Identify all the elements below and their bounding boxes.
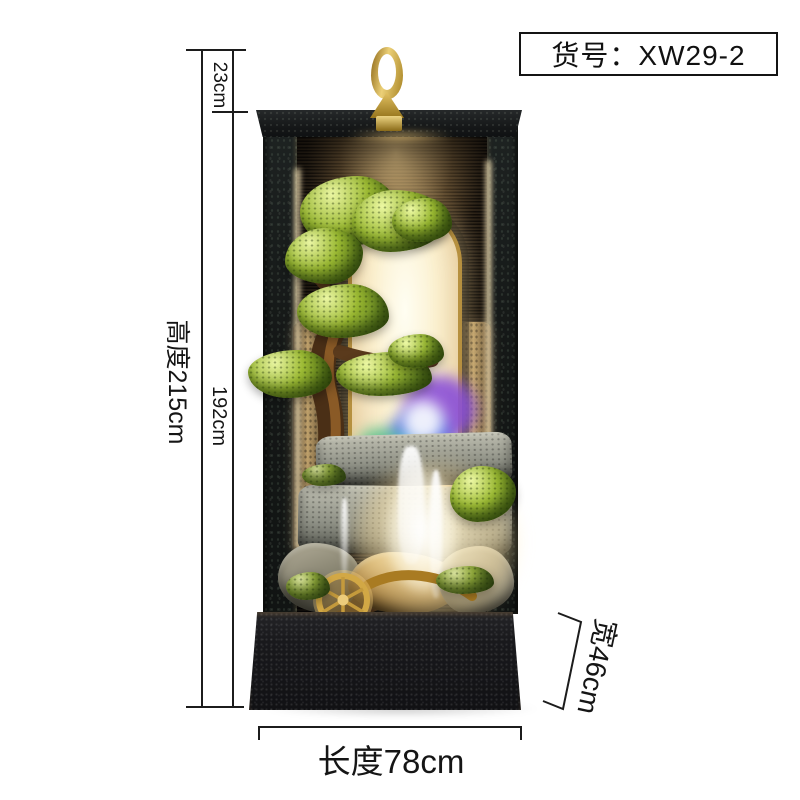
product-dimension-image: 货号：XW29-2 23cm 高度215cm 192cm 长度78cm 宽46c… [0,0,800,800]
product-code-box: 货号：XW29-2 [519,32,778,76]
total-height-line [201,50,203,708]
bonsai-foliage [388,334,444,368]
moss-patch [286,572,330,600]
length-line [258,726,522,728]
tick-bottom [186,706,244,708]
inner-height-label: 192cm [208,381,230,451]
hanging-hook-mount [376,116,402,131]
stone-base [249,612,521,710]
depth-label: 宽46cm [577,611,629,725]
length-tick-left [258,726,260,740]
bonsai-foliage [392,198,452,242]
tick-top [186,49,246,51]
hook-height-label: 23cm [208,55,230,115]
moss-patch [436,566,494,594]
bonsai-foliage [285,228,363,284]
bonsai-foliage-overhang-left [248,350,332,398]
waterfall-stream [341,498,348,576]
length-label: 长度78cm [291,735,491,775]
product-code-text: 货号：XW29-2 [551,34,745,74]
bonsai-foliage [297,284,389,338]
length-tick-right [520,726,522,740]
segment-height-line [232,50,234,708]
hanging-hook-hole [378,54,396,90]
hanging-hook-stem [370,92,404,118]
moss-patch [302,464,346,486]
top-bar-underglow [345,131,455,141]
waterfall-stream [398,446,424,564]
total-height-label: 高度215cm [169,307,197,457]
